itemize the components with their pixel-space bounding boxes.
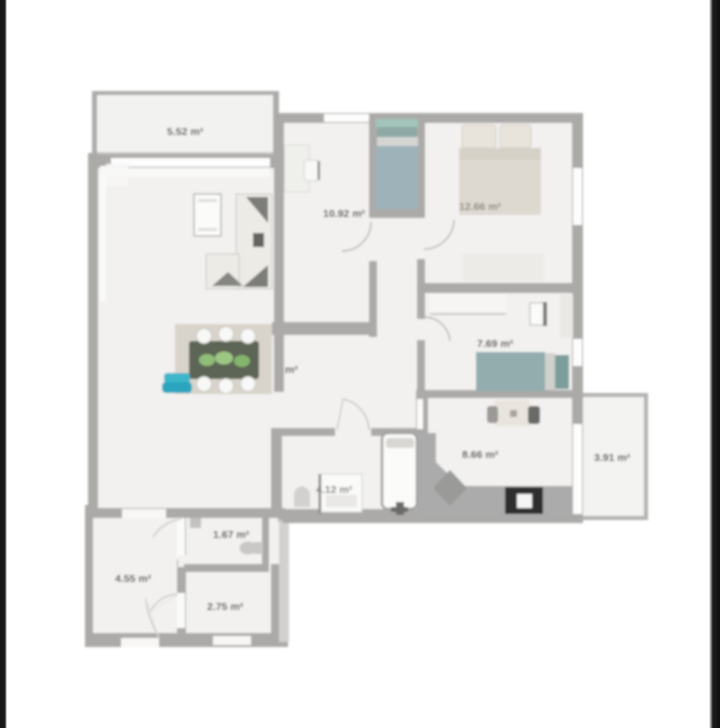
svg-text:5.52 m²: 5.52 m²	[167, 126, 204, 138]
svg-text:10.92 m²: 10.92 m²	[323, 208, 366, 220]
svg-text:3.91 m²: 3.91 m²	[594, 452, 631, 464]
svg-text:7.69 m²: 7.69 m²	[477, 338, 514, 350]
svg-text:m²: m²	[285, 364, 298, 376]
svg-text:2.75 m²: 2.75 m²	[207, 601, 244, 613]
svg-text:8.66 m²: 8.66 m²	[462, 449, 499, 461]
svg-text:4.55 m²: 4.55 m²	[115, 573, 152, 585]
svg-text:1.67 m²: 1.67 m²	[213, 529, 250, 541]
svg-text:4.12 m²: 4.12 m²	[316, 484, 353, 496]
svg-text:12.66 m²: 12.66 m²	[459, 201, 502, 213]
